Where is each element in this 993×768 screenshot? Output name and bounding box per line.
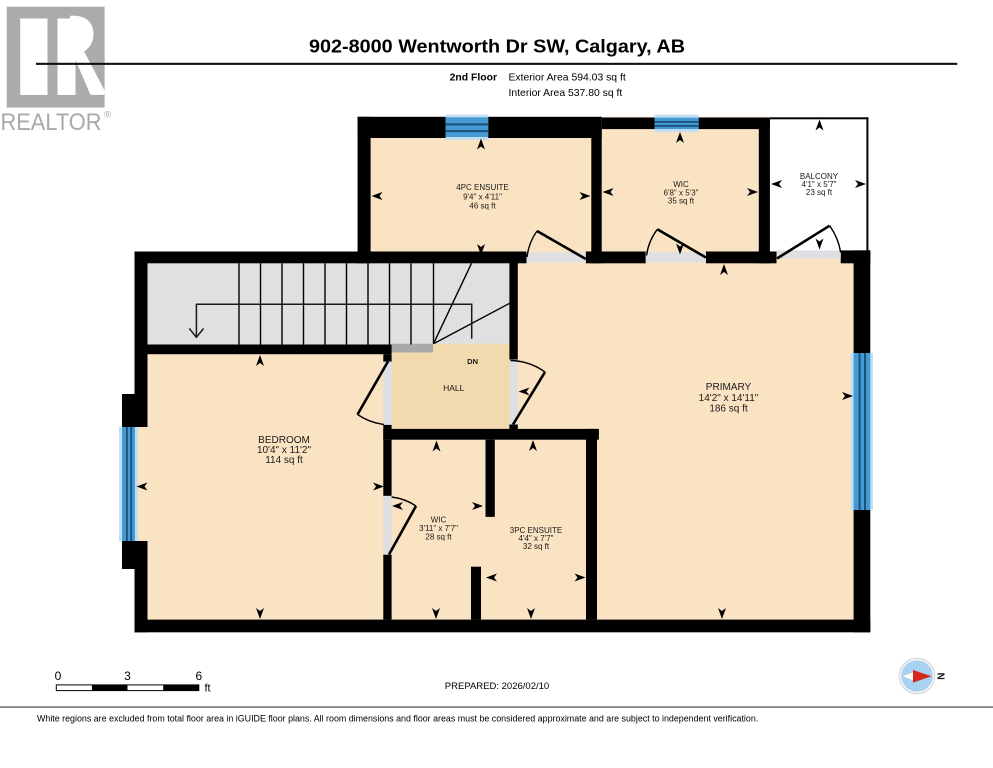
svg-text:3: 3: [124, 669, 131, 683]
svg-text:DN: DN: [467, 357, 478, 366]
svg-text:2nd Floor: 2nd Floor: [450, 73, 497, 84]
svg-text:186 sq ft: 186 sq ft: [709, 403, 748, 414]
svg-text:Exterior Area 594.03 sq ft: Exterior Area 594.03 sq ft: [509, 73, 626, 84]
svg-text:PRIMARY: PRIMARY: [706, 382, 752, 393]
svg-text:114 sq ft: 114 sq ft: [265, 455, 303, 466]
svg-text:Interior Area 537.80 sq ft: Interior Area 537.80 sq ft: [509, 88, 623, 99]
svg-text:N: N: [935, 673, 946, 680]
svg-text:REALTOR: REALTOR: [1, 109, 102, 136]
svg-text:PREPARED: 2026/02/10: PREPARED: 2026/02/10: [445, 681, 549, 692]
svg-text:32 sq ft: 32 sq ft: [523, 542, 550, 551]
svg-text:902-8000 Wentworth Dr SW, Calg: 902-8000 Wentworth Dr SW, Calgary, AB: [309, 36, 685, 57]
svg-text:®: ®: [104, 110, 111, 121]
svg-text:46 sq ft: 46 sq ft: [469, 202, 496, 211]
svg-text:0: 0: [55, 669, 62, 683]
svg-text:ft: ft: [205, 683, 211, 695]
svg-text:HALL: HALL: [443, 383, 465, 393]
svg-text:4PC ENSUITE: 4PC ENSUITE: [456, 183, 508, 192]
svg-text:35 sq ft: 35 sq ft: [668, 197, 695, 206]
svg-text:6: 6: [195, 669, 202, 683]
svg-text:28 sq ft: 28 sq ft: [425, 533, 452, 542]
svg-text:White regions are excluded fro: White regions are excluded from total fl…: [37, 714, 758, 724]
svg-text:9'4" x 4'11": 9'4" x 4'11": [463, 193, 502, 202]
svg-text:23 sq ft: 23 sq ft: [806, 188, 833, 197]
